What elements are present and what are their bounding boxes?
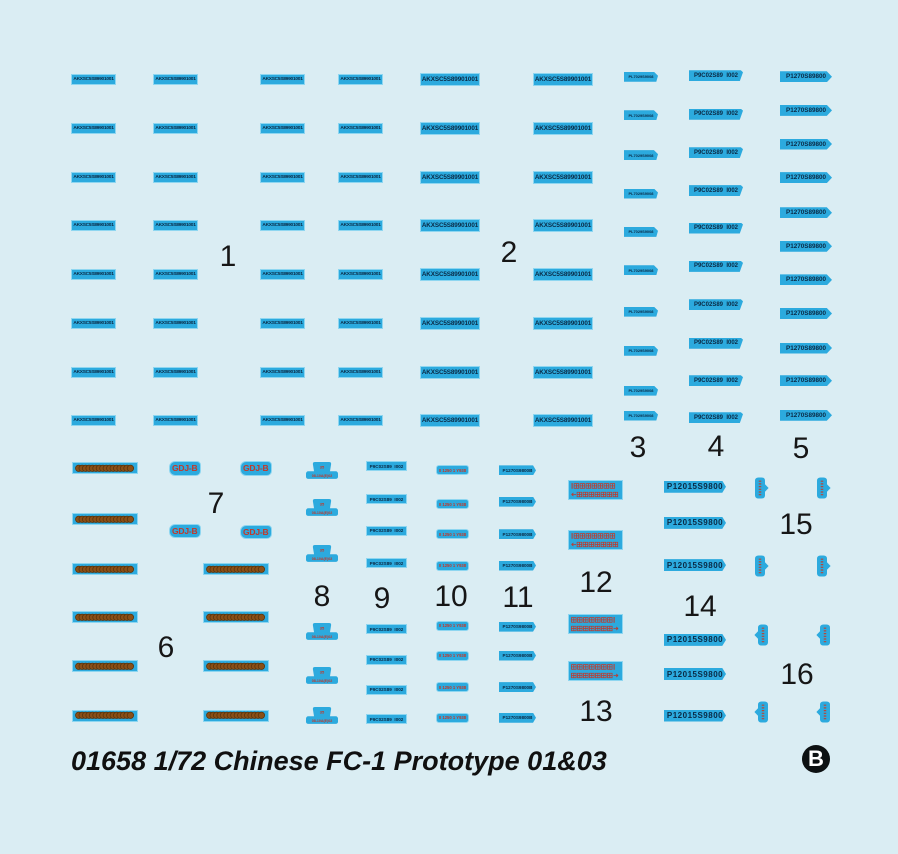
svg-text:08-10A(E)02: 08-10A(E)02 <box>312 718 333 722</box>
svg-text:08-10A(E)02: 08-10A(E)02 <box>312 679 333 683</box>
svg-text:08-10A(E)02: 08-10A(E)02 <box>312 473 333 477</box>
svg-text:35: 35 <box>320 502 325 507</box>
svg-text:35: 35 <box>320 548 325 553</box>
svg-text:35: 35 <box>320 670 325 675</box>
svg-text:08-10A(E)02: 08-10A(E)02 <box>312 557 333 561</box>
svg-text:35: 35 <box>320 464 325 469</box>
svg-text:08-10A(E)02: 08-10A(E)02 <box>312 635 333 639</box>
svg-text:35: 35 <box>320 709 325 714</box>
svg-text:08-10A(E)02: 08-10A(E)02 <box>312 511 333 515</box>
svg-text:35: 35 <box>320 626 325 631</box>
